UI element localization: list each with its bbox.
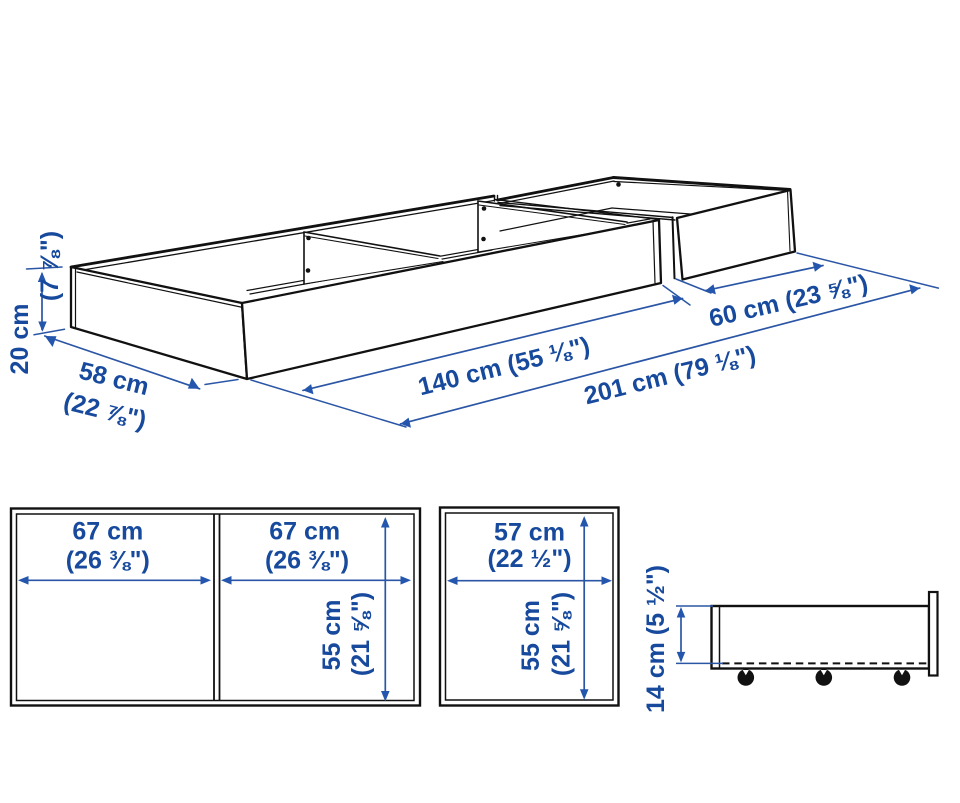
- svg-text:67 cm: 67 cm: [72, 518, 143, 546]
- svg-text:67 cm: 67 cm: [269, 518, 340, 546]
- svg-text:(21 ⅝"): (21 ⅝"): [548, 592, 576, 676]
- svg-text:(7 ⅞"): (7 ⅞"): [36, 231, 64, 301]
- svg-text:14 cm (5 ½"): 14 cm (5 ½"): [642, 565, 670, 713]
- svg-text:55 cm: 55 cm: [517, 600, 545, 671]
- svg-text:(21 ⅝"): (21 ⅝"): [347, 592, 375, 676]
- svg-text:(26 ⅜"): (26 ⅜"): [66, 547, 150, 575]
- svg-text:(26 ⅜"): (26 ⅜"): [265, 547, 349, 575]
- svg-text:55 cm: 55 cm: [318, 600, 346, 671]
- svg-text:57 cm: 57 cm: [494, 518, 565, 546]
- svg-text:20 cm: 20 cm: [6, 304, 34, 375]
- svg-text:(22 ½"): (22 ½"): [487, 545, 571, 573]
